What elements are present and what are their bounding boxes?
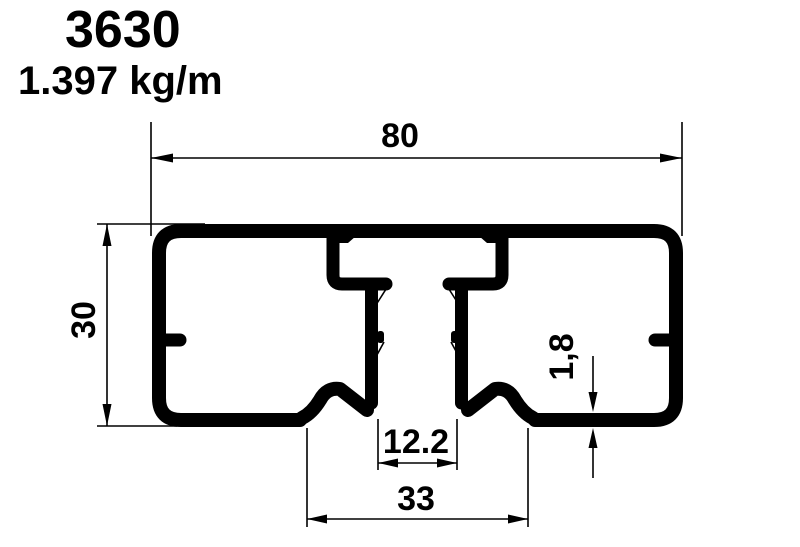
tslot-top-nub-right (479, 233, 497, 243)
dim-overall-height: 30 (65, 224, 205, 426)
dim-wall-thickness-value: 1,8 (543, 333, 581, 380)
arrowhead-right (660, 154, 682, 163)
arrowhead-left (151, 154, 173, 163)
screw-channel-nub-right (451, 331, 458, 343)
dim-overall-width: 80 (151, 117, 682, 236)
arrowhead-right (508, 515, 528, 524)
bottom-hook-lip-left (302, 389, 367, 418)
profile-technical-drawing: 3630 1.397 kg/m (0, 0, 800, 547)
arrowhead-up (589, 428, 598, 448)
bottom-hook-lip-right (468, 389, 533, 418)
profile-geometry (159, 231, 676, 420)
part-number: 3630 (65, 1, 181, 59)
dim-bottom-span-value: 33 (397, 480, 435, 518)
dim-slot-opening-value: 12.2 (383, 423, 449, 461)
arrowhead-left (307, 515, 327, 524)
dim-slot-opening: 12.2 (378, 419, 457, 470)
arrowhead-top (103, 224, 112, 246)
title-block: 3630 1.397 kg/m (18, 1, 223, 103)
dim-overall-height-value: 30 (65, 301, 103, 339)
tslot-top-nub-left (338, 233, 356, 243)
arrowhead-bottom (103, 404, 112, 426)
profile-outer-shell (159, 231, 676, 420)
weight-per-meter: 1.397 kg/m (18, 59, 223, 103)
dim-wall-thickness: 1,8 (543, 333, 598, 478)
dim-overall-width-value: 80 (381, 117, 419, 155)
arrowhead-down (589, 392, 598, 412)
screw-channel-nub-left (377, 331, 384, 343)
drawing-sheet: 3630 1.397 kg/m (0, 0, 800, 547)
